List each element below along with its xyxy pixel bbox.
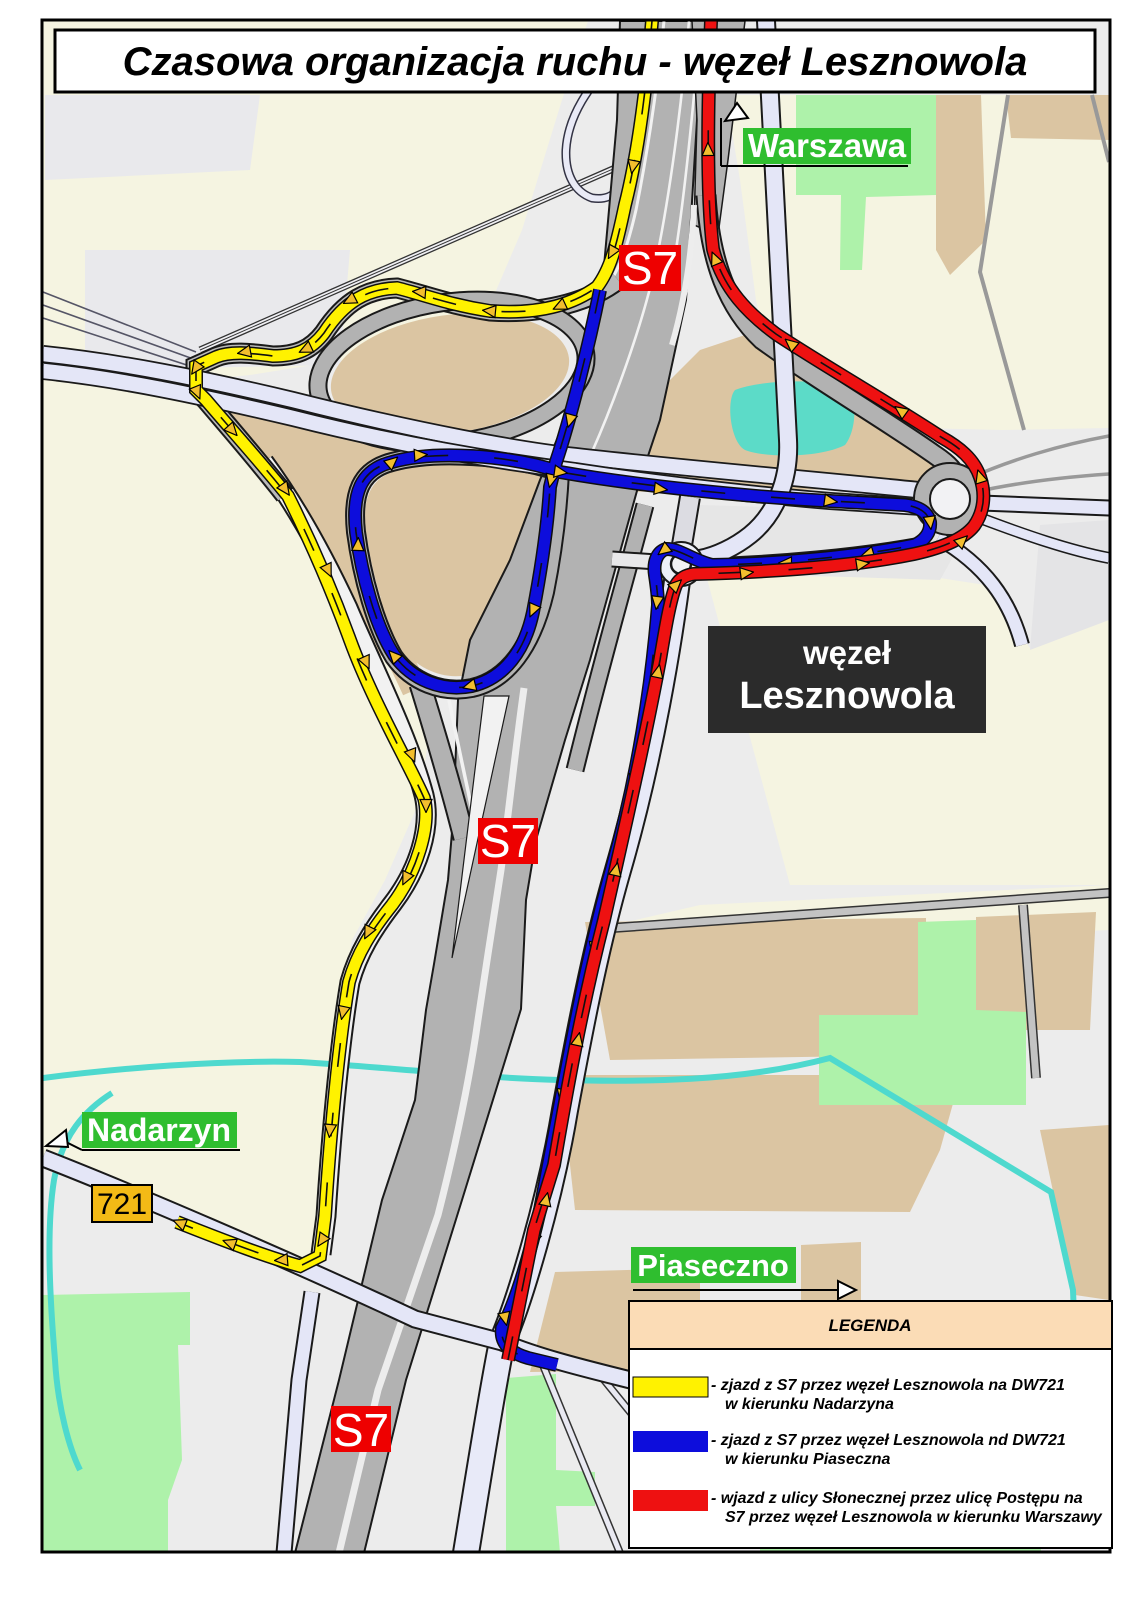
svg-text:Piaseczno: Piaseczno bbox=[637, 1248, 789, 1283]
svg-text:S7: S7 bbox=[622, 242, 678, 294]
svg-text:Lesznowola: Lesznowola bbox=[739, 675, 955, 717]
svg-text:w kierunku Nadarzyna: w kierunku Nadarzyna bbox=[725, 1396, 894, 1413]
svg-text:Nadarzyn: Nadarzyn bbox=[87, 1112, 231, 1148]
svg-text:Czasowa organizacja ruchu - wę: Czasowa organizacja ruchu - węzeł Leszno… bbox=[123, 40, 1028, 84]
svg-text:- zjazd z S7 przez węzeł Leszn: - zjazd z S7 przez węzeł Lesznowola nd D… bbox=[711, 1432, 1066, 1449]
svg-text:LEGENDA: LEGENDA bbox=[828, 1316, 911, 1335]
svg-text:721: 721 bbox=[97, 1188, 147, 1221]
svg-text:- zjazd z S7 przez węzeł Leszn: - zjazd z S7 przez węzeł Lesznowola na D… bbox=[711, 1377, 1065, 1394]
svg-text:S7: S7 bbox=[333, 1404, 389, 1456]
svg-text:węzeł: węzeł bbox=[802, 634, 891, 671]
svg-text:S7: S7 bbox=[480, 815, 536, 867]
svg-text:S7 przez węzeł Lesznowola w ki: S7 przez węzeł Lesznowola w kierunku War… bbox=[725, 1509, 1103, 1526]
svg-text:Warszawa: Warszawa bbox=[748, 127, 907, 164]
svg-text:w kierunku Piaseczna: w kierunku Piaseczna bbox=[725, 1451, 891, 1468]
svg-text:- wjazd z ulicy Słonecznej prz: - wjazd z ulicy Słonecznej przez ulicę P… bbox=[711, 1490, 1083, 1507]
